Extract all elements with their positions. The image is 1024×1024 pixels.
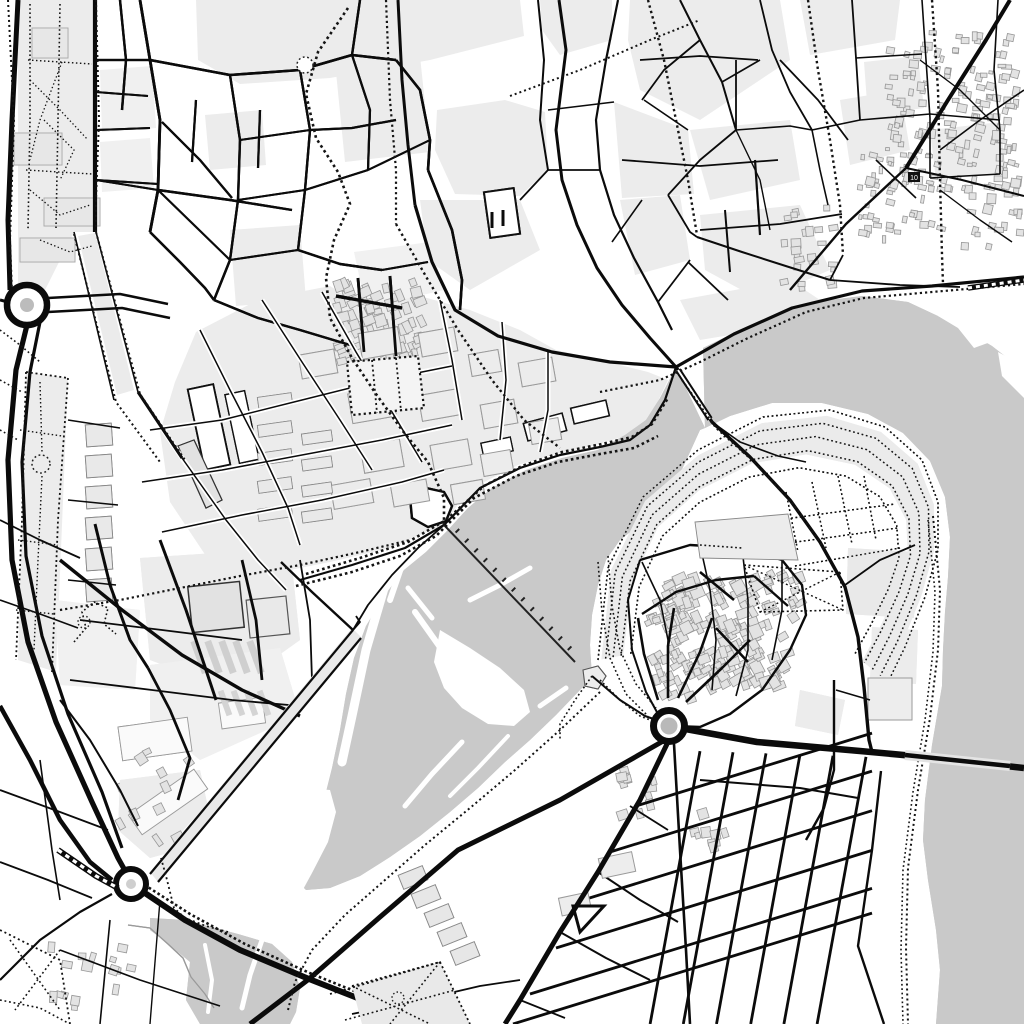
svg-text:10: 10 bbox=[910, 175, 918, 182]
